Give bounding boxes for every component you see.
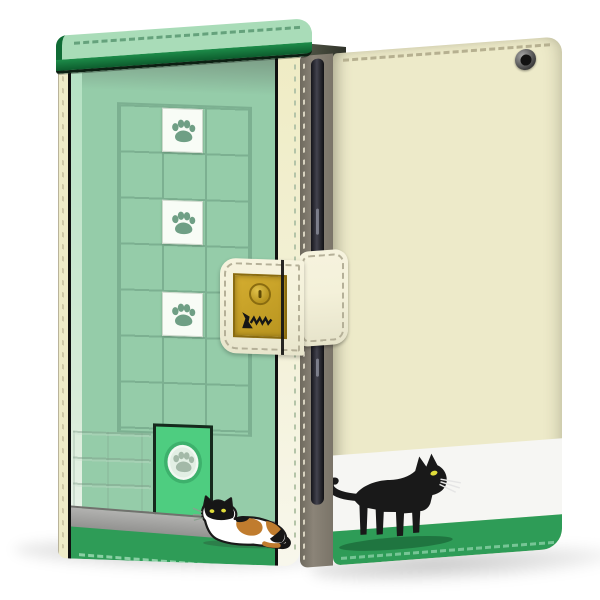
front-case: [56, 36, 306, 567]
black-cat-body: [354, 452, 447, 539]
cover-edge-line: [281, 260, 284, 355]
brick-area: [73, 431, 151, 514]
closure-strap: [220, 258, 304, 356]
paw-tile: [162, 200, 203, 245]
camera-lens-icon: [520, 54, 531, 66]
calico-tail-band: [264, 544, 278, 546]
paw-tile: [162, 108, 203, 153]
camera-hole: [515, 48, 536, 71]
black-cat: [333, 439, 477, 556]
strap-stitch: [302, 253, 344, 343]
front-spine: [58, 42, 68, 558]
gold-buckle: [233, 273, 287, 339]
calico-cat: [192, 479, 296, 551]
snap-slit: [259, 290, 262, 298]
roof-stitch: [74, 26, 300, 45]
phone-glint: [316, 209, 319, 235]
phone-glint: [316, 359, 319, 377]
back-cover: [333, 36, 562, 565]
paw-icon: [169, 116, 197, 145]
paw-icon: [169, 208, 197, 237]
paw-tile: [162, 292, 203, 337]
product-photo-phone-case: [0, 0, 600, 600]
spine-stitch: [62, 52, 64, 548]
black-cat-whiskers: [440, 478, 461, 494]
snap-button: [249, 283, 271, 306]
cat-doodle-icon: [239, 305, 273, 332]
back-case: [300, 36, 562, 568]
band-stitch: [79, 553, 267, 566]
paw-icon: [169, 300, 197, 329]
